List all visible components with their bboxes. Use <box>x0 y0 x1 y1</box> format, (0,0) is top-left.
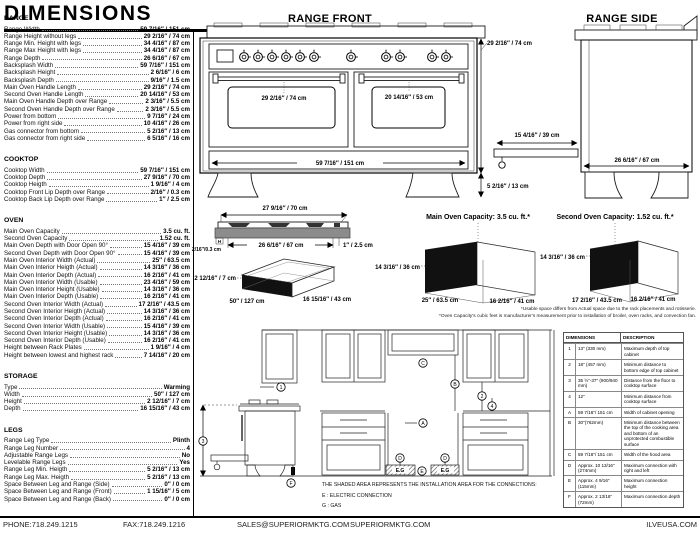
base-cabinet-right <box>463 413 528 475</box>
row-ref: 3 <box>564 376 576 391</box>
second-oven-opening <box>590 241 638 291</box>
main-oven-capacity-title: Main Oven Capacity: 3.5 cu. ft.* <box>426 214 530 221</box>
footer-phone: PHONE:718.249.1215 <box>3 520 78 529</box>
front-lip-pointer: H <box>218 239 221 244</box>
table-row: A 59 7/16″/ 151 cm Width of cabinet open… <box>564 407 683 417</box>
row-dimension: 59 7/16″/ 151 cm <box>576 408 622 417</box>
main-oven-depth-label: 16 2/16″ / 41 cm <box>490 299 535 305</box>
svg-text:D: D <box>443 456 447 462</box>
front-left-leg <box>208 173 258 197</box>
row-dimension: 12″ <box>576 392 622 407</box>
range-side-title: RANGE SIDE <box>586 13 657 25</box>
row-description: Minimum distance between the top of the … <box>622 418 683 449</box>
callout-D: D <box>396 454 404 462</box>
open-door <box>494 149 578 157</box>
callout-2: 2 <box>478 392 486 400</box>
installation-note: THE SHADED AREA REPRESENTS THE INSTALLAT… <box>322 482 537 488</box>
svg-text:3: 3 <box>202 439 205 445</box>
side-body <box>581 40 692 172</box>
footer-email[interactable]: SALES@SUPERIORMKTG.COM <box>237 520 349 529</box>
row-dimension: 13″ (330 mm) <box>576 344 622 359</box>
callout-A: A <box>419 419 427 427</box>
second-handle-length-label: 20 14/16″ / 53 cm <box>385 95 433 101</box>
upper-cabinet-left <box>322 330 385 382</box>
svg-text:F: F <box>289 481 292 487</box>
side-front-leg <box>585 172 622 198</box>
row-description: Minimum distance to bottom edge of top c… <box>622 360 683 375</box>
footer-site-ilveusa[interactable]: ILVEUSA.COM <box>646 520 697 529</box>
storage-height-label: 2 12/16″ / 7 cm <box>194 276 236 282</box>
legend-electric: E : ELECTRIC CONNECTION <box>322 493 392 499</box>
row-dimension: 35 ½″-37″ (900/940 mm) <box>576 376 622 391</box>
side-back-leg <box>651 172 688 198</box>
callout-D: D <box>441 454 449 462</box>
svg-text:D: D <box>398 456 402 462</box>
cooktop-depth-label: 27 9/16″ / 70 cm <box>263 206 308 212</box>
svg-text:C: C <box>421 361 425 367</box>
range-side-profile <box>245 411 295 465</box>
legend-gas: G : GAS <box>322 503 341 509</box>
main-oven-window <box>228 87 335 128</box>
main-oven-width-label: 25″ / 63.5 cm <box>422 298 459 304</box>
callout-E: E <box>418 467 426 475</box>
row-ref: 1 <box>564 344 576 359</box>
cooktop-profile-diagram: 27 9/16″ / 70 cm H 2/16″/0.3 cm 26 6/16″… <box>192 206 373 253</box>
storage-width-label: 50″ / 127 cm <box>230 299 265 305</box>
range-width-label: 59 7/16″ / 151 cm <box>316 161 364 167</box>
cooktop-body <box>215 228 350 238</box>
range-side-diagram: RANGE SIDE 26 6/16″ / 67 cm <box>575 13 697 198</box>
table-row: 1 13″ (330 mm) Maximum depth of top cabi… <box>564 343 683 359</box>
row-description: Distance from the floor to cooktop surfa… <box>622 376 683 391</box>
base-cabinet-left <box>322 413 385 475</box>
svg-text:1: 1 <box>280 385 283 391</box>
row-dimension: Approx. 4 9/16″ (115mm) <box>576 476 622 491</box>
range-front-diagram: RANGE FRONT 29 2/16″ / 74 cm 20 14/16″ /… <box>200 13 532 197</box>
table-row: C 59 7/16″/ 151 cm Width of the hood are… <box>564 449 683 459</box>
caster-wheel-icon <box>499 162 505 168</box>
cooktop-edge <box>575 30 697 40</box>
row-dimension: Approx. 10 13/16″ (274mm) <box>576 461 622 476</box>
callout-4: 4 <box>488 402 496 410</box>
row-dimension: 18″ (457 mm) <box>576 360 622 375</box>
top-cabinet <box>262 330 297 383</box>
row-dimension: Approx. 2 13/16″ (72mm) <box>576 492 622 507</box>
second-oven-height-label: 14 3/16″ / 36 cm <box>540 255 585 261</box>
row-ref: 2 <box>564 360 576 375</box>
connection-label: E.G <box>441 468 450 474</box>
row-ref: B <box>564 418 576 449</box>
row-ref: D <box>564 461 576 476</box>
second-oven-width-label: 17 2/16″ / 43.5 cm <box>572 298 622 304</box>
connection-label: E.G <box>396 468 405 474</box>
storage-depth-label: 16 15/16″ / 43 cm <box>303 297 351 303</box>
callout-C: C <box>419 359 427 367</box>
caster-wheel-icon <box>214 464 220 470</box>
installation-table: DIMENSIONS DESCRIPTION 1 13″ (330 mm) Ma… <box>563 332 684 508</box>
range-depth-label: 26 6/16″ / 67 cm <box>615 158 660 164</box>
main-oven-opening <box>425 242 477 293</box>
front-lip-label: 2/16″/0.3 cm <box>192 247 222 253</box>
second-oven-capacity-title: Second Oven Capacity: 1.52 cu. ft.* <box>556 214 673 221</box>
second-oven-capacity-diagram: Second Oven Capacity: 1.52 cu. ft.* 14 3… <box>540 214 678 304</box>
table-row: 4 12″ Minimum distance from cooktop surf… <box>564 391 683 407</box>
callout-B: B <box>451 380 459 388</box>
range-height-label: 29 2/16″ / 74 cm <box>487 41 532 47</box>
table-row: E Approx. 4 9/16″ (115mm) Maximum connec… <box>564 475 683 491</box>
table-row: 3 35 ½″-37″ (900/940 mm) Distance from t… <box>564 375 683 391</box>
front-right-leg <box>406 173 459 197</box>
storage-drawer-diagram: 2 12/16″ / 7 cm 50″ / 127 cm 16 15/16″ /… <box>194 259 351 305</box>
open-storage-door <box>211 455 248 461</box>
second-oven-window <box>372 87 445 128</box>
footnote-1: *Usable space differs from Actual space … <box>521 307 696 314</box>
svg-text:2: 2 <box>481 394 484 400</box>
main-oven-capacity-diagram: Main Oven Capacity: 3.5 cu. ft.* 14 3/16… <box>375 214 535 305</box>
main-oven-handle <box>215 77 343 81</box>
table-row: B 30″(762mm) Minimum distance between th… <box>564 417 683 449</box>
upper-cabinet-right <box>463 330 528 382</box>
row-dimension: 59 7/16″/ 151 cm <box>576 450 622 459</box>
door-open-depth-label: 15 4/16″ / 39 cm <box>515 133 560 139</box>
footnote-2: *Oven Capacity's cubic feet is manufactu… <box>439 314 696 321</box>
clock-display <box>217 50 233 62</box>
row-description: Width of cabinet opening <box>622 408 683 417</box>
installation-diagram: E.G E.G 1 2 3 4 A B C D D E F <box>199 330 554 487</box>
row-ref: C <box>564 450 576 459</box>
second-oven-depth-label: 16 2/16″ / 41 cm <box>631 297 676 303</box>
row-dimension: 30″(762mm) <box>576 418 622 449</box>
svg-text:4: 4 <box>491 404 494 410</box>
header-description: DESCRIPTION <box>621 333 683 342</box>
footer-fax: FAX:718.249.1216 <box>123 520 185 529</box>
row-description: Maximum connection with right and left <box>622 461 683 476</box>
door-open-dimension: 15 4/16″ / 39 cm <box>494 133 578 168</box>
main-oven-height-label: 14 3/16″ / 36 cm <box>375 265 420 271</box>
header-dimensions: DIMENSIONS <box>564 333 621 342</box>
callout-3: 3 <box>199 437 207 445</box>
footer-divider <box>0 516 700 518</box>
spec-sheet-page: DIMENSIONS RANGE Range Width 59 7/16″ / … <box>0 0 700 534</box>
row-description: Maximum depth of top cabinet <box>622 344 683 359</box>
leg-height-label: 5 2/16″ / 13 cm <box>487 184 529 190</box>
row-description: Maximum connection height <box>622 476 683 491</box>
main-handle-length-label: 29 2/16″ / 74 cm <box>262 96 307 102</box>
table-row: 2 18″ (457 mm) Minimum distance to botto… <box>564 359 683 375</box>
back-lip-label: 1″ / 2.5 cm <box>343 243 373 249</box>
row-description: Width of the hood area <box>622 450 683 459</box>
row-description: Minimum distance from cooktop surface <box>622 392 683 407</box>
footer-site-superiormktg[interactable]: SUPERIORMKTG.COM <box>350 520 430 529</box>
callout-F: F <box>287 479 295 487</box>
cooktop-inner-depth-label: 26 6/16″ / 67 cm <box>259 243 304 249</box>
table-header: DIMENSIONS DESCRIPTION <box>564 333 683 343</box>
table-row: F Approx. 2 13/16″ (72mm) Maximum connec… <box>564 491 683 507</box>
row-ref: F <box>564 492 576 507</box>
row-ref: E <box>564 476 576 491</box>
row-description: Maximum connection depth <box>622 492 683 507</box>
footer: PHONE:718.249.1215 FAX:718.249.1216 SALE… <box>0 520 700 532</box>
burner-grates <box>207 26 485 38</box>
row-ref: 4 <box>564 392 576 407</box>
row-ref: A <box>564 408 576 417</box>
table-row: D Approx. 10 13/16″ (274mm) Maximum conn… <box>564 460 683 476</box>
second-oven-handle <box>361 77 463 81</box>
callout-1: 1 <box>277 383 285 391</box>
